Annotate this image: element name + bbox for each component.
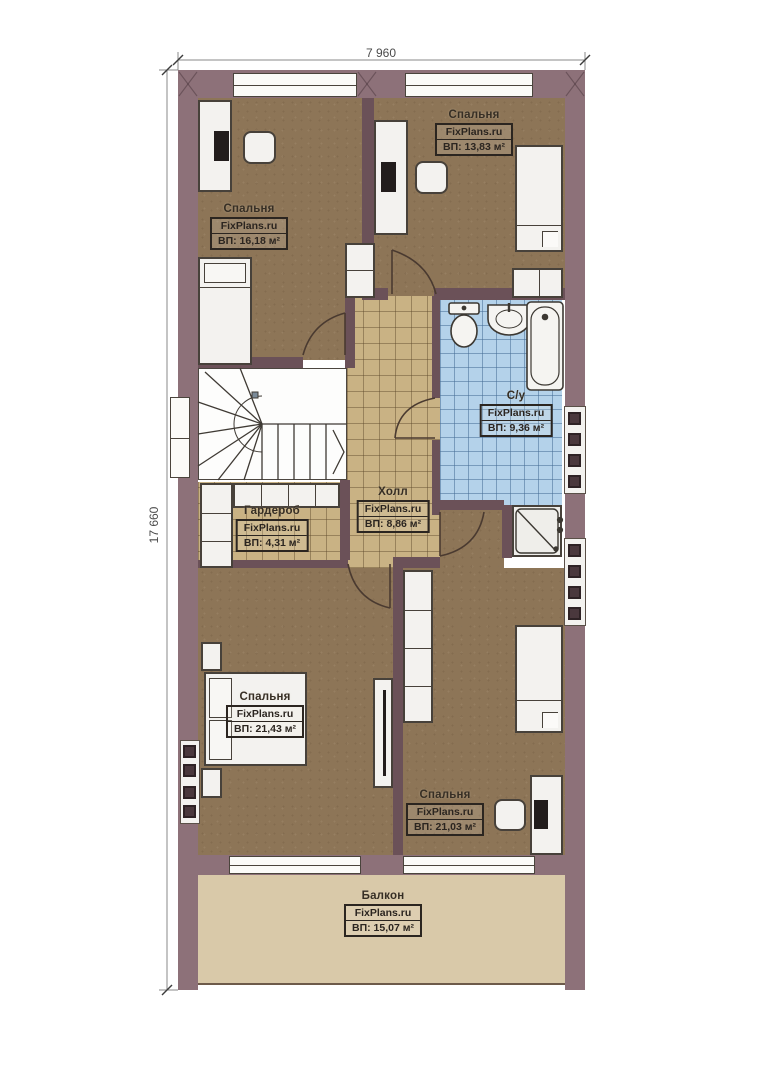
chair-bedroom-bottom-right [494, 799, 526, 831]
room-name: Холл [378, 486, 408, 498]
wall-bathroom-left-lower [432, 440, 440, 515]
wall-below-bedroom-tr-left [374, 288, 388, 300]
room-info-box: FixPlans.ru ВП: 15,07 м² [344, 904, 422, 937]
nightstand-top-bedroom-bottom-left [201, 642, 222, 671]
room-info-box: FixPlans.ru ВП: 13,83 м² [435, 123, 513, 156]
nightstand-bedroom-top-right [512, 268, 563, 298]
shower-cabin [512, 505, 562, 557]
wall-wardrobe-right [340, 480, 350, 560]
brand-watermark: FixPlans.ru [346, 906, 420, 921]
room-name: Гардероб [244, 505, 300, 517]
room-info-box: FixPlans.ru ВП: 16,18 м² [210, 217, 288, 250]
wall-left [178, 70, 198, 990]
room-name: Спальня [223, 203, 274, 215]
room-area: ВП: 21,03 м² [408, 820, 482, 834]
monitor-bedroom-top-left [214, 131, 229, 161]
window-top-left [233, 73, 357, 97]
wardrobe-bedroom-bottom-right [403, 570, 433, 723]
nightstand-bottom-bedroom-bottom-left [201, 768, 222, 798]
monitor-bedroom-bottom-right [534, 800, 548, 829]
room-label-bedroom-bottom-left: Спальня FixPlans.ru ВП: 21,43 м² [226, 691, 304, 738]
room-area: ВП: 13,83 м² [437, 140, 511, 154]
wall-passage-bottom [393, 557, 440, 568]
room-label-bedroom-top-right: Спальня FixPlans.ru ВП: 13,83 м² [435, 109, 513, 156]
window-balcony-right [403, 856, 535, 874]
room-area: ВП: 15,07 м² [346, 921, 420, 935]
brand-watermark: FixPlans.ru [359, 502, 428, 517]
room-label-bedroom-top-left: Спальня FixPlans.ru ВП: 16,18 м² [210, 203, 288, 250]
brand-watermark: FixPlans.ru [408, 805, 482, 820]
dimension-height: 17 660 [147, 507, 161, 544]
window-balcony-left [229, 856, 361, 874]
vent-shaft-right-lower [564, 538, 586, 626]
brand-watermark: FixPlans.ru [437, 125, 511, 140]
cabinet-bedroom-top-left [345, 243, 375, 298]
wall-shower-left [502, 505, 512, 558]
floor-plan: 7 960 17 660 Спальня FixPlans.ru ВП: 16,… [0, 0, 763, 1080]
window-top-right [405, 73, 533, 97]
room-info-box: FixPlans.ru ВП: 21,43 м² [226, 705, 304, 738]
room-label-balcony: Балкон FixPlans.ru ВП: 15,07 м² [344, 890, 422, 937]
room-info-box: FixPlans.ru ВП: 21,03 м² [406, 803, 484, 836]
bed-bedroom-bottom-right [515, 625, 563, 733]
vent-shaft-left [180, 740, 200, 824]
room-label-bathroom: С/у FixPlans.ru ВП: 9,36 м² [480, 390, 553, 437]
room-name: Спальня [239, 691, 290, 703]
chair-bedroom-top-right [415, 161, 448, 194]
vent-shaft-right-upper [564, 406, 586, 494]
room-area: ВП: 16,18 м² [212, 234, 286, 248]
bed-bedroom-top-right [515, 145, 563, 252]
wall-between-bottom-bedrooms [393, 568, 403, 855]
room-name: С/у [507, 390, 526, 402]
room-name: Спальня [419, 789, 470, 801]
room-area: ВП: 9,36 м² [482, 421, 551, 435]
tv-screen [383, 690, 386, 776]
room-info-box: FixPlans.ru ВП: 9,36 м² [480, 404, 553, 437]
window-stairs-left [170, 397, 190, 478]
room-area: ВП: 4,31 м² [238, 536, 307, 550]
room-name: Спальня [448, 109, 499, 121]
floor-passage [440, 508, 504, 568]
room-label-hall: Холл FixPlans.ru ВП: 8,86 м² [357, 486, 430, 533]
room-label-wardrobe: Гардероб FixPlans.ru ВП: 4,31 м² [236, 505, 309, 552]
room-info-box: FixPlans.ru ВП: 8,86 м² [357, 500, 430, 533]
room-name: Балкон [362, 890, 405, 902]
brand-watermark: FixPlans.ru [482, 406, 551, 421]
wall-bathroom-left-upper [432, 296, 440, 398]
room-area: ВП: 21,43 м² [228, 722, 302, 736]
brand-watermark: FixPlans.ru [238, 521, 307, 536]
wardrobe-cabinet-left-column [200, 483, 233, 568]
monitor-bedroom-top-right [381, 162, 396, 192]
wall-right [565, 70, 585, 990]
dimension-width: 7 960 [366, 46, 396, 60]
chair-bedroom-top-left [243, 131, 276, 164]
brand-watermark: FixPlans.ru [212, 219, 286, 234]
room-info-box: FixPlans.ru ВП: 4,31 м² [236, 519, 309, 552]
bed-bedroom-top-left [198, 257, 252, 365]
floor-staircase [198, 368, 347, 480]
room-area: ВП: 8,86 м² [359, 517, 428, 531]
wall-bedroom-tl-right [345, 296, 355, 368]
room-label-bedroom-bottom-right: Спальня FixPlans.ru ВП: 21,03 м² [406, 789, 484, 836]
brand-watermark: FixPlans.ru [228, 707, 302, 722]
wall-bathroom-bottom [440, 500, 504, 510]
